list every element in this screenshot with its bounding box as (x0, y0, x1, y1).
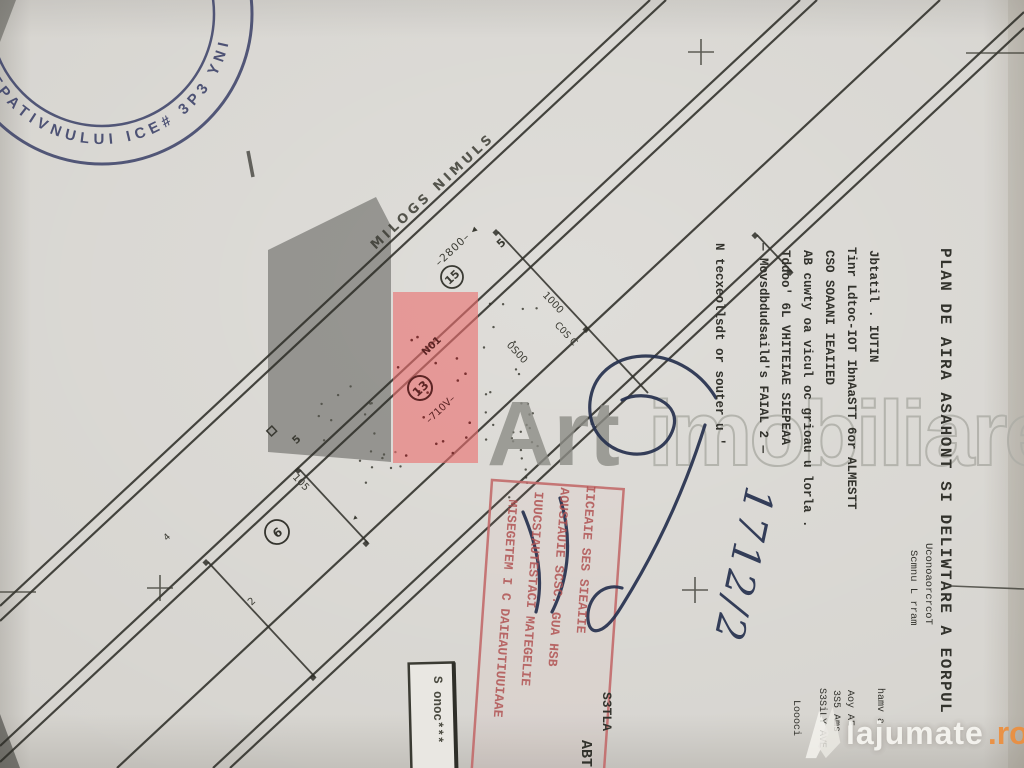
stipple-dot (318, 415, 320, 417)
stipple-dot (492, 326, 494, 328)
corner-line-1: Loooci (790, 700, 801, 736)
stipple-dot (365, 482, 367, 484)
stipple-dot (465, 436, 468, 439)
info-line-5: Tddoo' 6L VHITEIAE SIEPEAA (778, 250, 792, 445)
stipple-dot (373, 432, 375, 434)
circled-number: 6 (270, 525, 285, 541)
stipple-dot (502, 303, 504, 305)
stipple-dot (434, 362, 437, 365)
site-watermark-brand: lajumate (846, 715, 984, 752)
stipple-dot (410, 339, 413, 342)
stipple-dot (457, 379, 460, 382)
stipple-dot (359, 460, 361, 462)
stipple-dot (483, 346, 485, 348)
tick (309, 674, 316, 681)
round-stamp: OSTPATIVNULUI ICE# 3P3 YNIC (0, 0, 252, 164)
stipple-dot (456, 357, 459, 360)
legend-box-label: S onoc*** (430, 676, 444, 744)
plan-subtitle-1: UconoaorcrcoT (922, 543, 934, 625)
dimension-line (498, 232, 648, 393)
plan-drawing-layer: OSTPATIVNULUI ICE# 3P3 YNIC (0, 0, 1024, 768)
stipple-dot (320, 403, 322, 405)
stipple-dot (464, 372, 467, 375)
stipple-dot (452, 452, 455, 455)
stipple-dot (518, 373, 520, 375)
parcel-boundary (300, 470, 368, 543)
tick (202, 559, 209, 566)
stipple-dot (381, 457, 383, 459)
stipple-dot (337, 394, 339, 396)
stipple-dot (390, 467, 392, 469)
stipple-dot (349, 385, 351, 387)
watermark-outline-text: imobiliare (648, 383, 1024, 485)
stipple-dot (371, 466, 373, 468)
info-line-7: N tecxeollsdt or souter u ' (712, 243, 726, 446)
parcel-boundary (208, 562, 315, 677)
side-label-abt: ABT (577, 740, 594, 767)
info-line-4: AB cuwty oa vicul oc grioau u lorla . (800, 250, 814, 528)
stipple-dot (397, 366, 400, 369)
stipple-dot (383, 453, 385, 455)
info-line-6: — Movsdbdudsaild's FAIAL 2 — (756, 243, 770, 453)
tick (362, 540, 369, 547)
plan-title: PLAN DE AIRA ASAHONT SI DELIWTARE A EORP… (936, 248, 954, 714)
stipple-dot (330, 419, 332, 421)
lajumate-logo-icon (802, 704, 842, 762)
ink-dash-mark (248, 151, 253, 177)
stipple-dot (515, 368, 517, 370)
stipple-dot (370, 450, 372, 452)
circled-point-6: 6 (260, 515, 294, 549)
stipple-dot (364, 413, 366, 415)
site-watermark: lajumate.ro (802, 704, 1024, 762)
stipple-dot (399, 465, 401, 467)
paper-corner-top-left (0, 0, 16, 42)
stipple-dot (522, 308, 524, 310)
stipple-dot (323, 439, 325, 441)
info-line-3: CSO SOAANI IEAIIED (822, 250, 836, 385)
scanned-cadastral-plan-photo: OSTPATIVNULUI ICE# 3P3 YNIC (0, 0, 1024, 768)
info-line-2: Tinr Ldtoc-IOT IbnAaSTT 6or ALMESTT (844, 247, 858, 510)
site-watermark-tld: .ro (988, 715, 1024, 752)
stipple-dot (405, 454, 408, 457)
stipple-dot (442, 440, 445, 443)
stipple-dot (416, 336, 419, 339)
stipple-dot (535, 307, 537, 309)
stipple-dot (468, 421, 471, 424)
legend-box-edge (454, 662, 457, 768)
watermark-solid-text: Art (487, 383, 620, 485)
tick (751, 232, 758, 239)
plan-subtitle-2: Scmnu L rram (907, 550, 919, 626)
info-line-1: Jbtatil . IUTIN (866, 250, 880, 363)
side-label-s3tla: S3TLA (599, 692, 614, 731)
stipple-dot (435, 443, 438, 446)
